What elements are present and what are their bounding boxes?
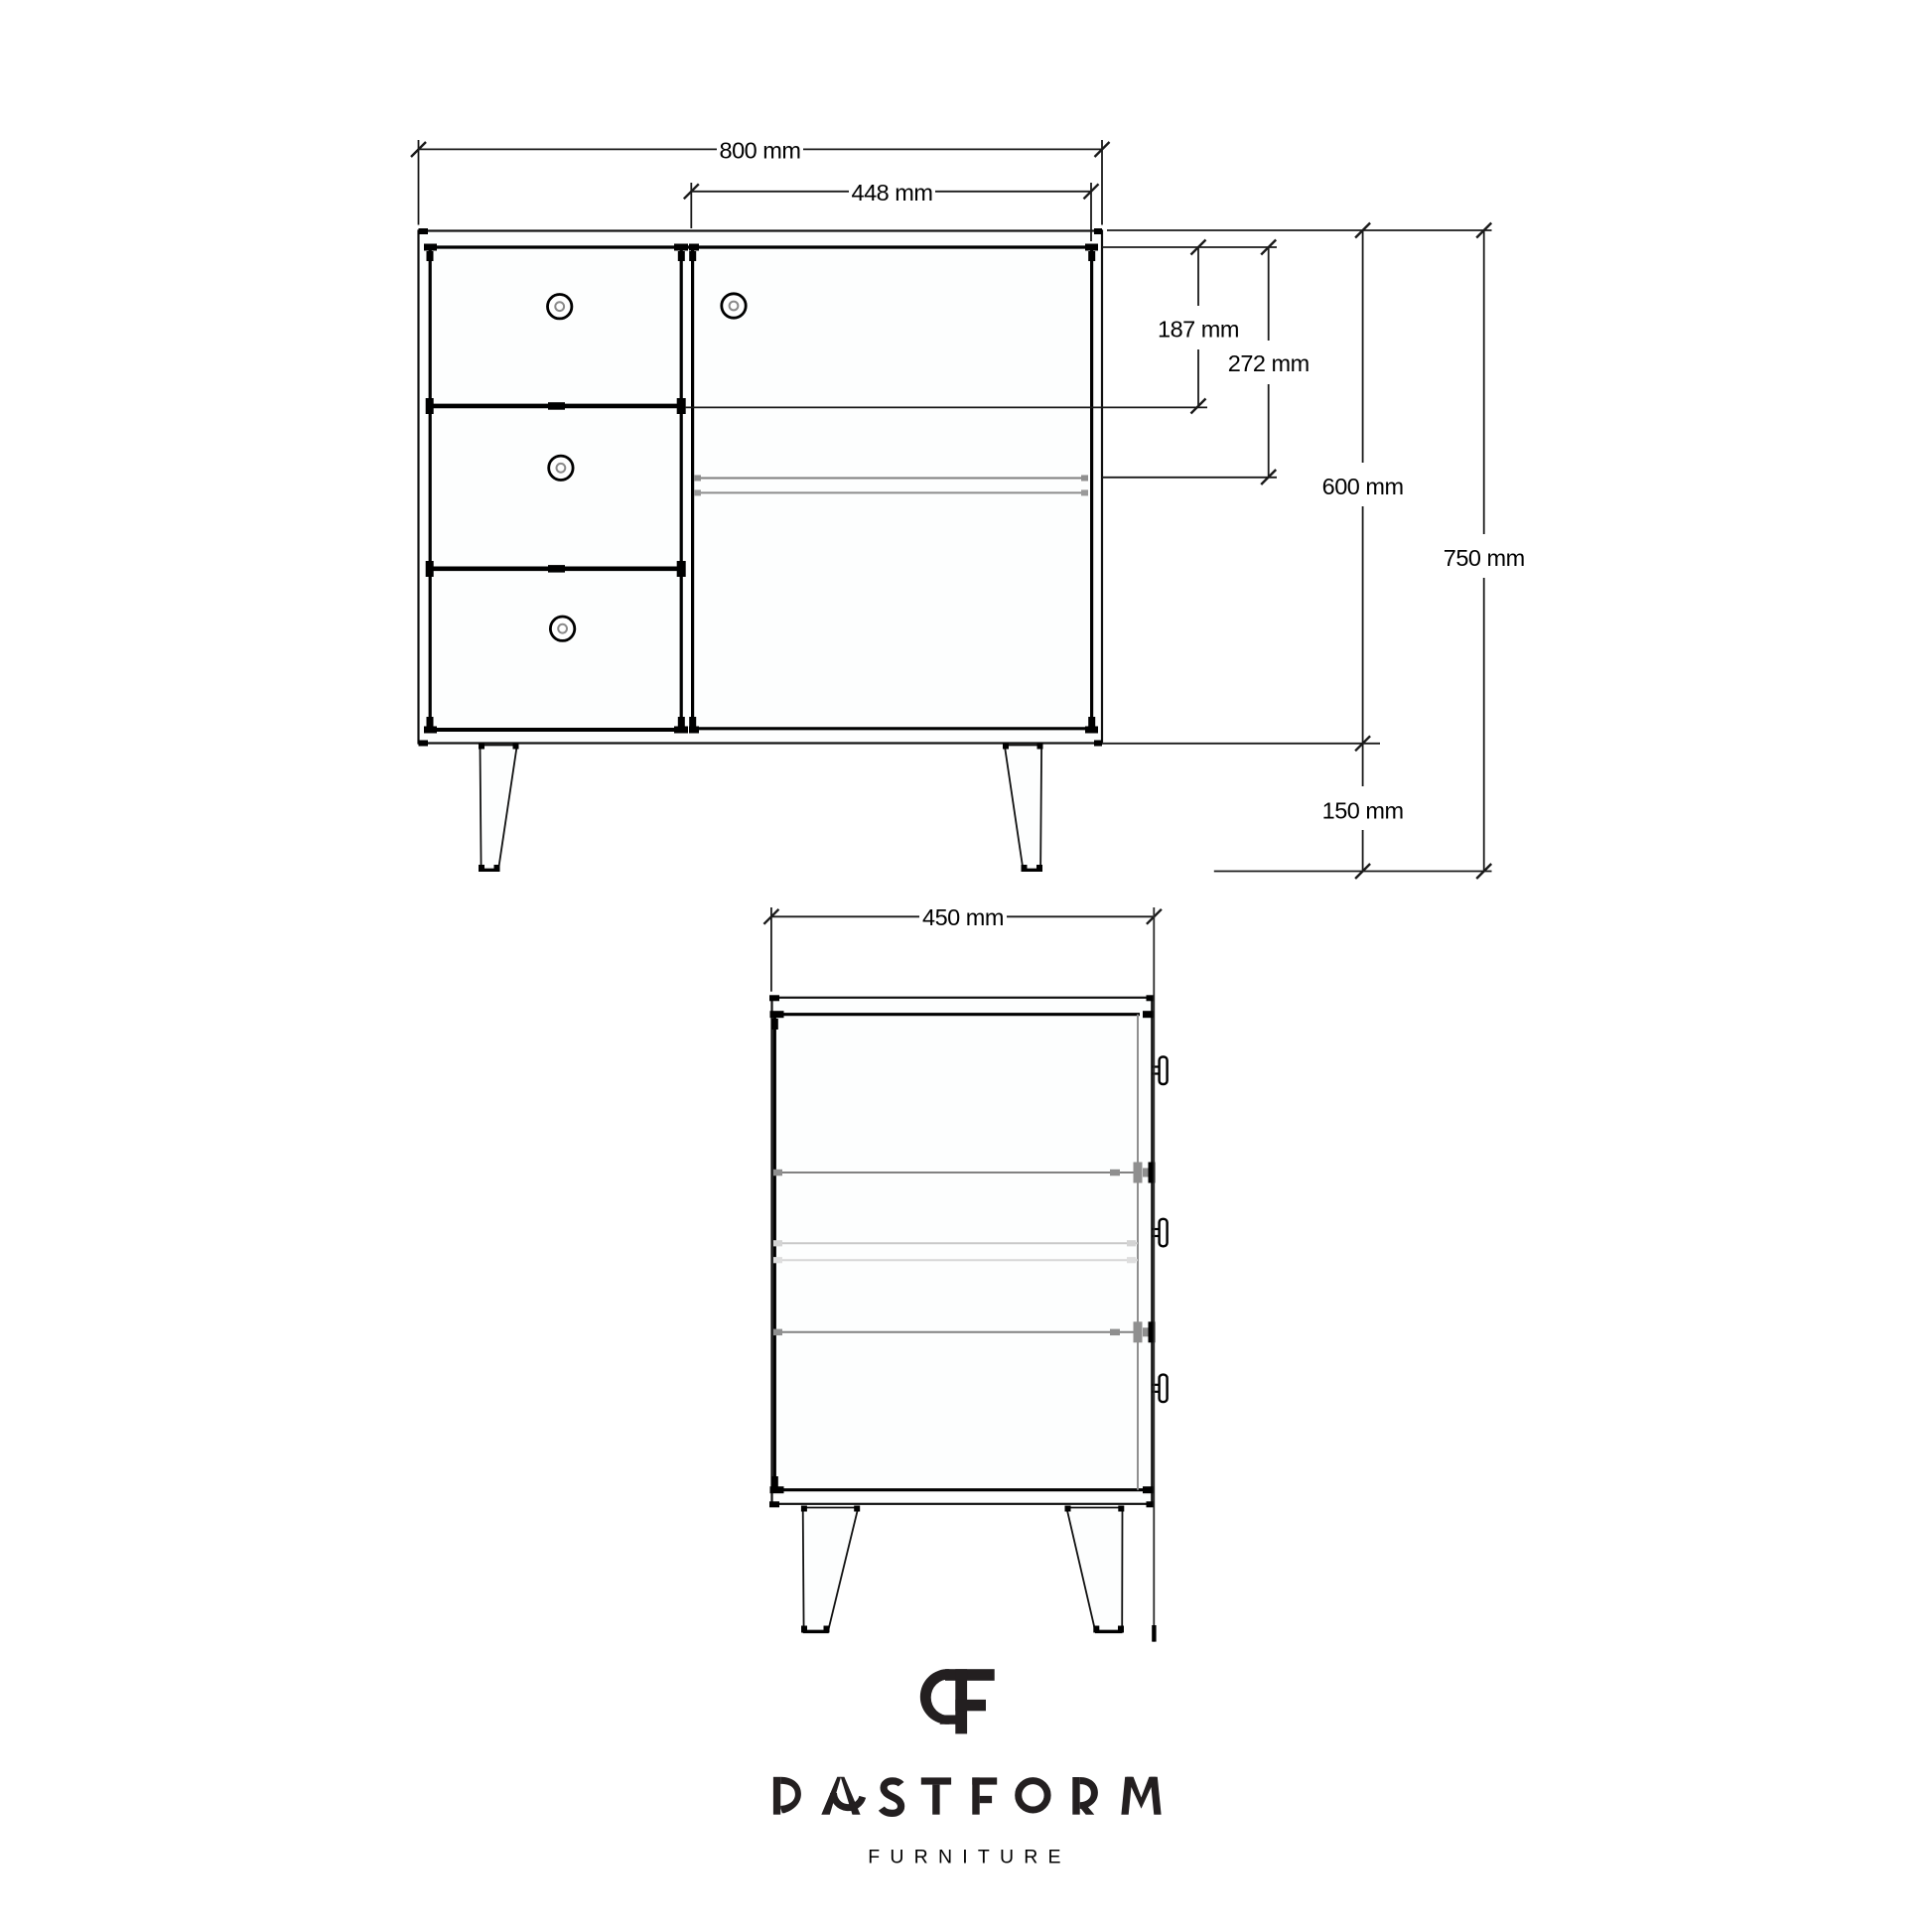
svg-text:800 mm: 800 mm	[720, 138, 801, 164]
svg-text:448 mm: 448 mm	[852, 180, 933, 206]
svg-text:750 mm: 750 mm	[1444, 545, 1525, 571]
svg-text:FURNITURE: FURNITURE	[868, 1846, 1070, 1867]
svg-text:150 mm: 150 mm	[1322, 798, 1404, 824]
svg-text:187 mm: 187 mm	[1158, 317, 1239, 343]
svg-text:272 mm: 272 mm	[1228, 350, 1310, 376]
svg-text:450 mm: 450 mm	[922, 904, 1004, 930]
svg-text:600 mm: 600 mm	[1322, 474, 1404, 499]
